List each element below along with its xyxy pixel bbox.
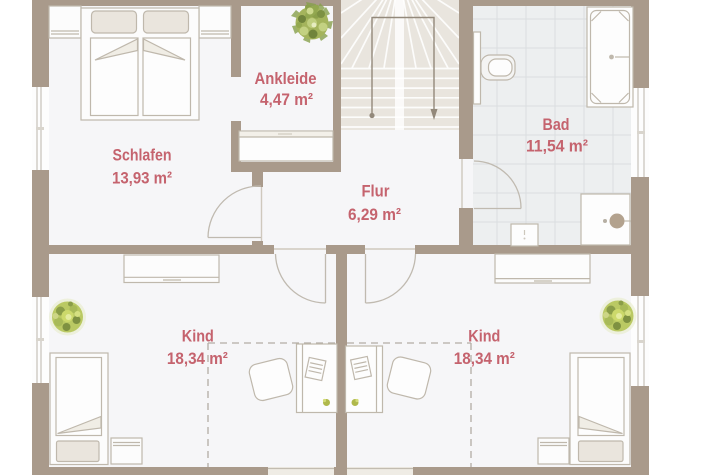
svg-text:13,93 m²: 13,93 m² (112, 169, 172, 188)
svg-text:Kind: Kind (468, 327, 500, 346)
svg-text:18,34 m²: 18,34 m² (167, 349, 228, 368)
svg-text:18,34 m²: 18,34 m² (454, 349, 515, 368)
svg-text:Schlafen: Schlafen (113, 146, 172, 165)
svg-text:Bad: Bad (543, 115, 570, 134)
svg-text:Ankleide: Ankleide (255, 69, 317, 88)
svg-text:4,47 m²: 4,47 m² (260, 90, 313, 109)
svg-text:11,54 m²: 11,54 m² (526, 137, 588, 156)
svg-text:Flur: Flur (362, 182, 390, 201)
svg-text:Kind: Kind (182, 327, 214, 346)
svg-text:6,29 m²: 6,29 m² (348, 205, 401, 224)
